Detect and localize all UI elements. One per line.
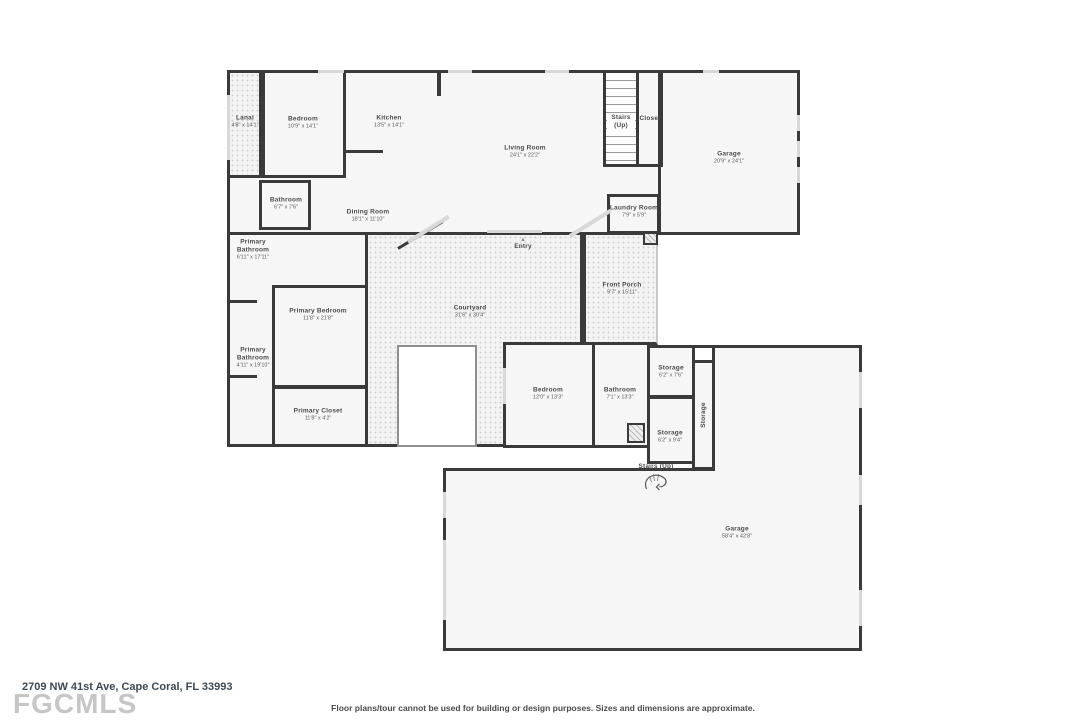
label-bathroom-lower: Bathroom7'1" x 13'3" bbox=[604, 387, 636, 402]
wall-segment bbox=[227, 175, 346, 178]
window-segment bbox=[797, 167, 800, 183]
label-courtyard: Courtyard31'6" x 30'4" bbox=[454, 305, 487, 320]
wall-segment bbox=[695, 345, 715, 348]
wall-segment bbox=[227, 375, 257, 378]
label-closet: Closet bbox=[638, 115, 662, 123]
room-primary-bedroom bbox=[272, 285, 368, 388]
label-primary-bedroom: Primary Bedroom11'8" x 21'8" bbox=[289, 308, 347, 323]
label-storage-corridor: Storage bbox=[700, 402, 708, 428]
window-segment bbox=[503, 368, 506, 404]
wall-segment bbox=[437, 70, 441, 96]
window-segment bbox=[487, 230, 542, 233]
courtyard-cutout bbox=[397, 345, 477, 447]
window-segment bbox=[703, 70, 719, 73]
wall-segment bbox=[658, 70, 661, 235]
property-address: 2709 NW 41st Ave, Cape Coral, FL 33993 bbox=[22, 681, 233, 693]
wall-segment bbox=[227, 300, 257, 303]
label-primary-closet: Primary Closet11'8" x 4'2" bbox=[294, 408, 343, 423]
label-garage-lower: Garage58'4" x 42'8" bbox=[722, 526, 752, 541]
label-bedroom-upper: Bedroom10'9" x 14'1" bbox=[288, 116, 318, 131]
wall-segment bbox=[343, 150, 383, 153]
fixture-hatch bbox=[643, 232, 658, 245]
window-segment bbox=[859, 590, 862, 626]
label-dining-room: Dining Room18'1" x 11'10" bbox=[347, 209, 390, 224]
window-segment bbox=[797, 115, 800, 131]
label-primary-bathroom-upper: Primary Bathroom6'11" x 17'11" bbox=[230, 238, 276, 261]
label-primary-bathroom-lower: Primary Bathroom4'11" x 19'10" bbox=[230, 346, 276, 369]
label-storage-2: Storage6'2" x 9'4" bbox=[657, 430, 683, 445]
label-lanai: Lanai4'8" x 14'1" bbox=[223, 115, 267, 130]
label-stairs-top: Stairs (Up) bbox=[607, 114, 635, 130]
label-living-room: Living Room24'1" x 22'2" bbox=[504, 145, 546, 160]
disclaimer-text: Floor plans/tour cannot be used for buil… bbox=[331, 703, 755, 713]
wall-segment bbox=[603, 164, 663, 167]
fixture-hatch bbox=[627, 423, 645, 443]
window-segment bbox=[545, 70, 569, 73]
spiral-stairs-icon bbox=[639, 471, 673, 491]
floor-plan-canvas: Lanai4'8" x 14'1" Bedroom10'9" x 14'1" K… bbox=[0, 0, 1086, 724]
window-segment bbox=[797, 141, 800, 157]
window-segment bbox=[448, 70, 472, 73]
window-segment bbox=[859, 475, 862, 505]
label-storage-1: Storage6'2" x 7'6" bbox=[658, 365, 684, 380]
label-bedroom-lower: Bedroom12'0" x 13'3" bbox=[533, 387, 563, 402]
garage-lower-main bbox=[443, 468, 862, 651]
label-garage-top: Garage20'9" x 24'1" bbox=[714, 151, 744, 166]
label-entry: ▲ Entry bbox=[514, 237, 532, 251]
label-kitchen: Kitchen13'5" x 14'1" bbox=[374, 115, 404, 130]
wall-segment bbox=[343, 70, 346, 178]
window-segment bbox=[859, 372, 862, 408]
label-laundry-room: Laundry Room7'9" x 5'9" bbox=[610, 205, 658, 220]
label-stairs-lower: Stairs (Up) bbox=[638, 463, 673, 491]
garage-lower-right-column bbox=[712, 345, 862, 470]
label-bathroom-upper: Bathroom6'7" x 7'6" bbox=[270, 197, 302, 212]
window-segment bbox=[443, 540, 446, 620]
window-segment bbox=[318, 70, 344, 73]
label-front-porch: Front Porch9'7" x 15'11" bbox=[602, 282, 641, 297]
window-segment bbox=[443, 492, 446, 518]
garage-seam-patch bbox=[715, 461, 859, 475]
